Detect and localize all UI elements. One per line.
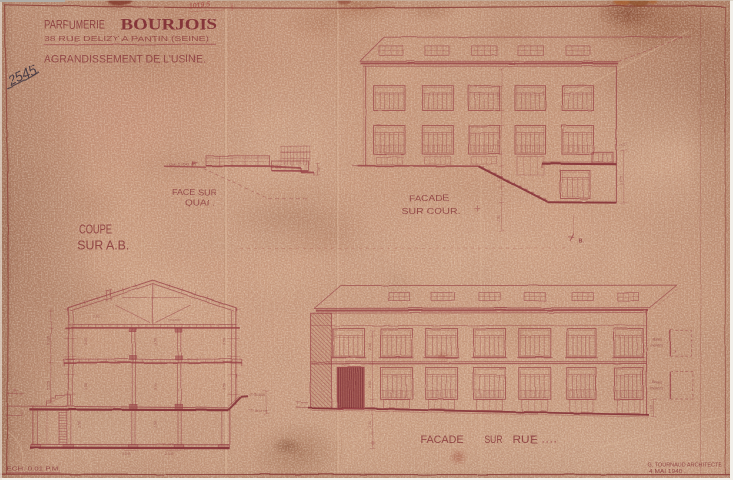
svg-text:2.50: 2.50 (497, 215, 501, 222)
svg-text:3.50: 3.50 (497, 140, 501, 147)
svg-text:murées: murées (651, 387, 664, 391)
svg-text:2.50: 2.50 (78, 421, 82, 428)
svg-text:3.50: 3.50 (222, 338, 226, 345)
svg-text:1.075: 1.075 (620, 176, 624, 185)
svg-text:AGRANDISSEMENT DE L'USINE.: AGRANDISSEMENT DE L'USINE. (44, 54, 206, 66)
svg-text:5.125: 5.125 (47, 336, 51, 345)
svg-text:RUE: RUE (513, 434, 538, 446)
svg-text:SUR A.B.: SUR A.B. (77, 238, 129, 253)
svg-text:3.24: 3.24 (368, 421, 372, 428)
svg-text:4.05: 4.05 (497, 175, 501, 182)
svg-text:2.60: 2.60 (368, 381, 372, 388)
svg-text:B.: B. (579, 239, 585, 245)
svg-text:FACE SUR: FACE SUR (172, 187, 217, 196)
svg-text:murées: murées (651, 344, 664, 348)
svg-text:SUR COUR.: SUR COUR. (402, 206, 461, 215)
svg-text:2.045: 2.045 (165, 452, 174, 456)
svg-text:3.50: 3.50 (222, 383, 226, 390)
svg-text:FACADE: FACADE (421, 434, 464, 446)
svg-text:FACADE: FACADE (409, 193, 450, 202)
svg-text:+2.60: +2.60 (342, 363, 351, 367)
svg-text:3.50: 3.50 (154, 338, 158, 345)
svg-text:ECH. 0.01 P.M.: ECH. 0.01 P.M. (7, 467, 62, 473)
svg-text:ca 1.60 m: ca 1.60 m (169, 162, 196, 166)
svg-text:PARFUMERIE: PARFUMERIE (44, 19, 105, 32)
svg-text:3.50: 3.50 (84, 383, 88, 390)
svg-text:COUPE: COUPE (79, 222, 112, 237)
svg-text:SUR: SUR (485, 434, 503, 446)
svg-text:QUAI .: QUAI . (185, 198, 215, 207)
svg-text:n. de la rue: n. de la rue (251, 408, 268, 412)
svg-text:38 RUE DELIZY A PANTIN (SEINE): 38 RUE DELIZY A PANTIN (SEINE) (44, 35, 209, 43)
svg-text:3.045: 3.045 (122, 452, 131, 456)
svg-text:1m: 1m (317, 167, 321, 172)
svg-text:2.60: 2.60 (93, 315, 100, 319)
svg-text:2.50: 2.50 (154, 421, 158, 428)
svg-text:3.50: 3.50 (497, 93, 501, 100)
svg-text:Baies: Baies (653, 338, 663, 342)
svg-text:2.60: 2.60 (368, 343, 372, 350)
svg-text:3.50: 3.50 (154, 383, 158, 390)
svg-text:soupente: soupente (168, 318, 181, 322)
svg-text:3.50: 3.50 (84, 338, 88, 345)
svg-text:1.80: 1.80 (649, 405, 653, 412)
svg-text:4 MAI 1940 .: 4 MAI 1940 . (649, 469, 686, 475)
svg-text:n. du quai: n. du quai (251, 393, 266, 397)
svg-text:5.125: 5.125 (47, 381, 51, 390)
svg-text:Baies: Baies (653, 381, 663, 385)
svg-text:G. TOURNAUD ARCHITECTE: G. TOURNAUD ARCHITECTE (648, 462, 723, 468)
svg-text:BOURJOIS: BOURJOIS (121, 17, 218, 34)
